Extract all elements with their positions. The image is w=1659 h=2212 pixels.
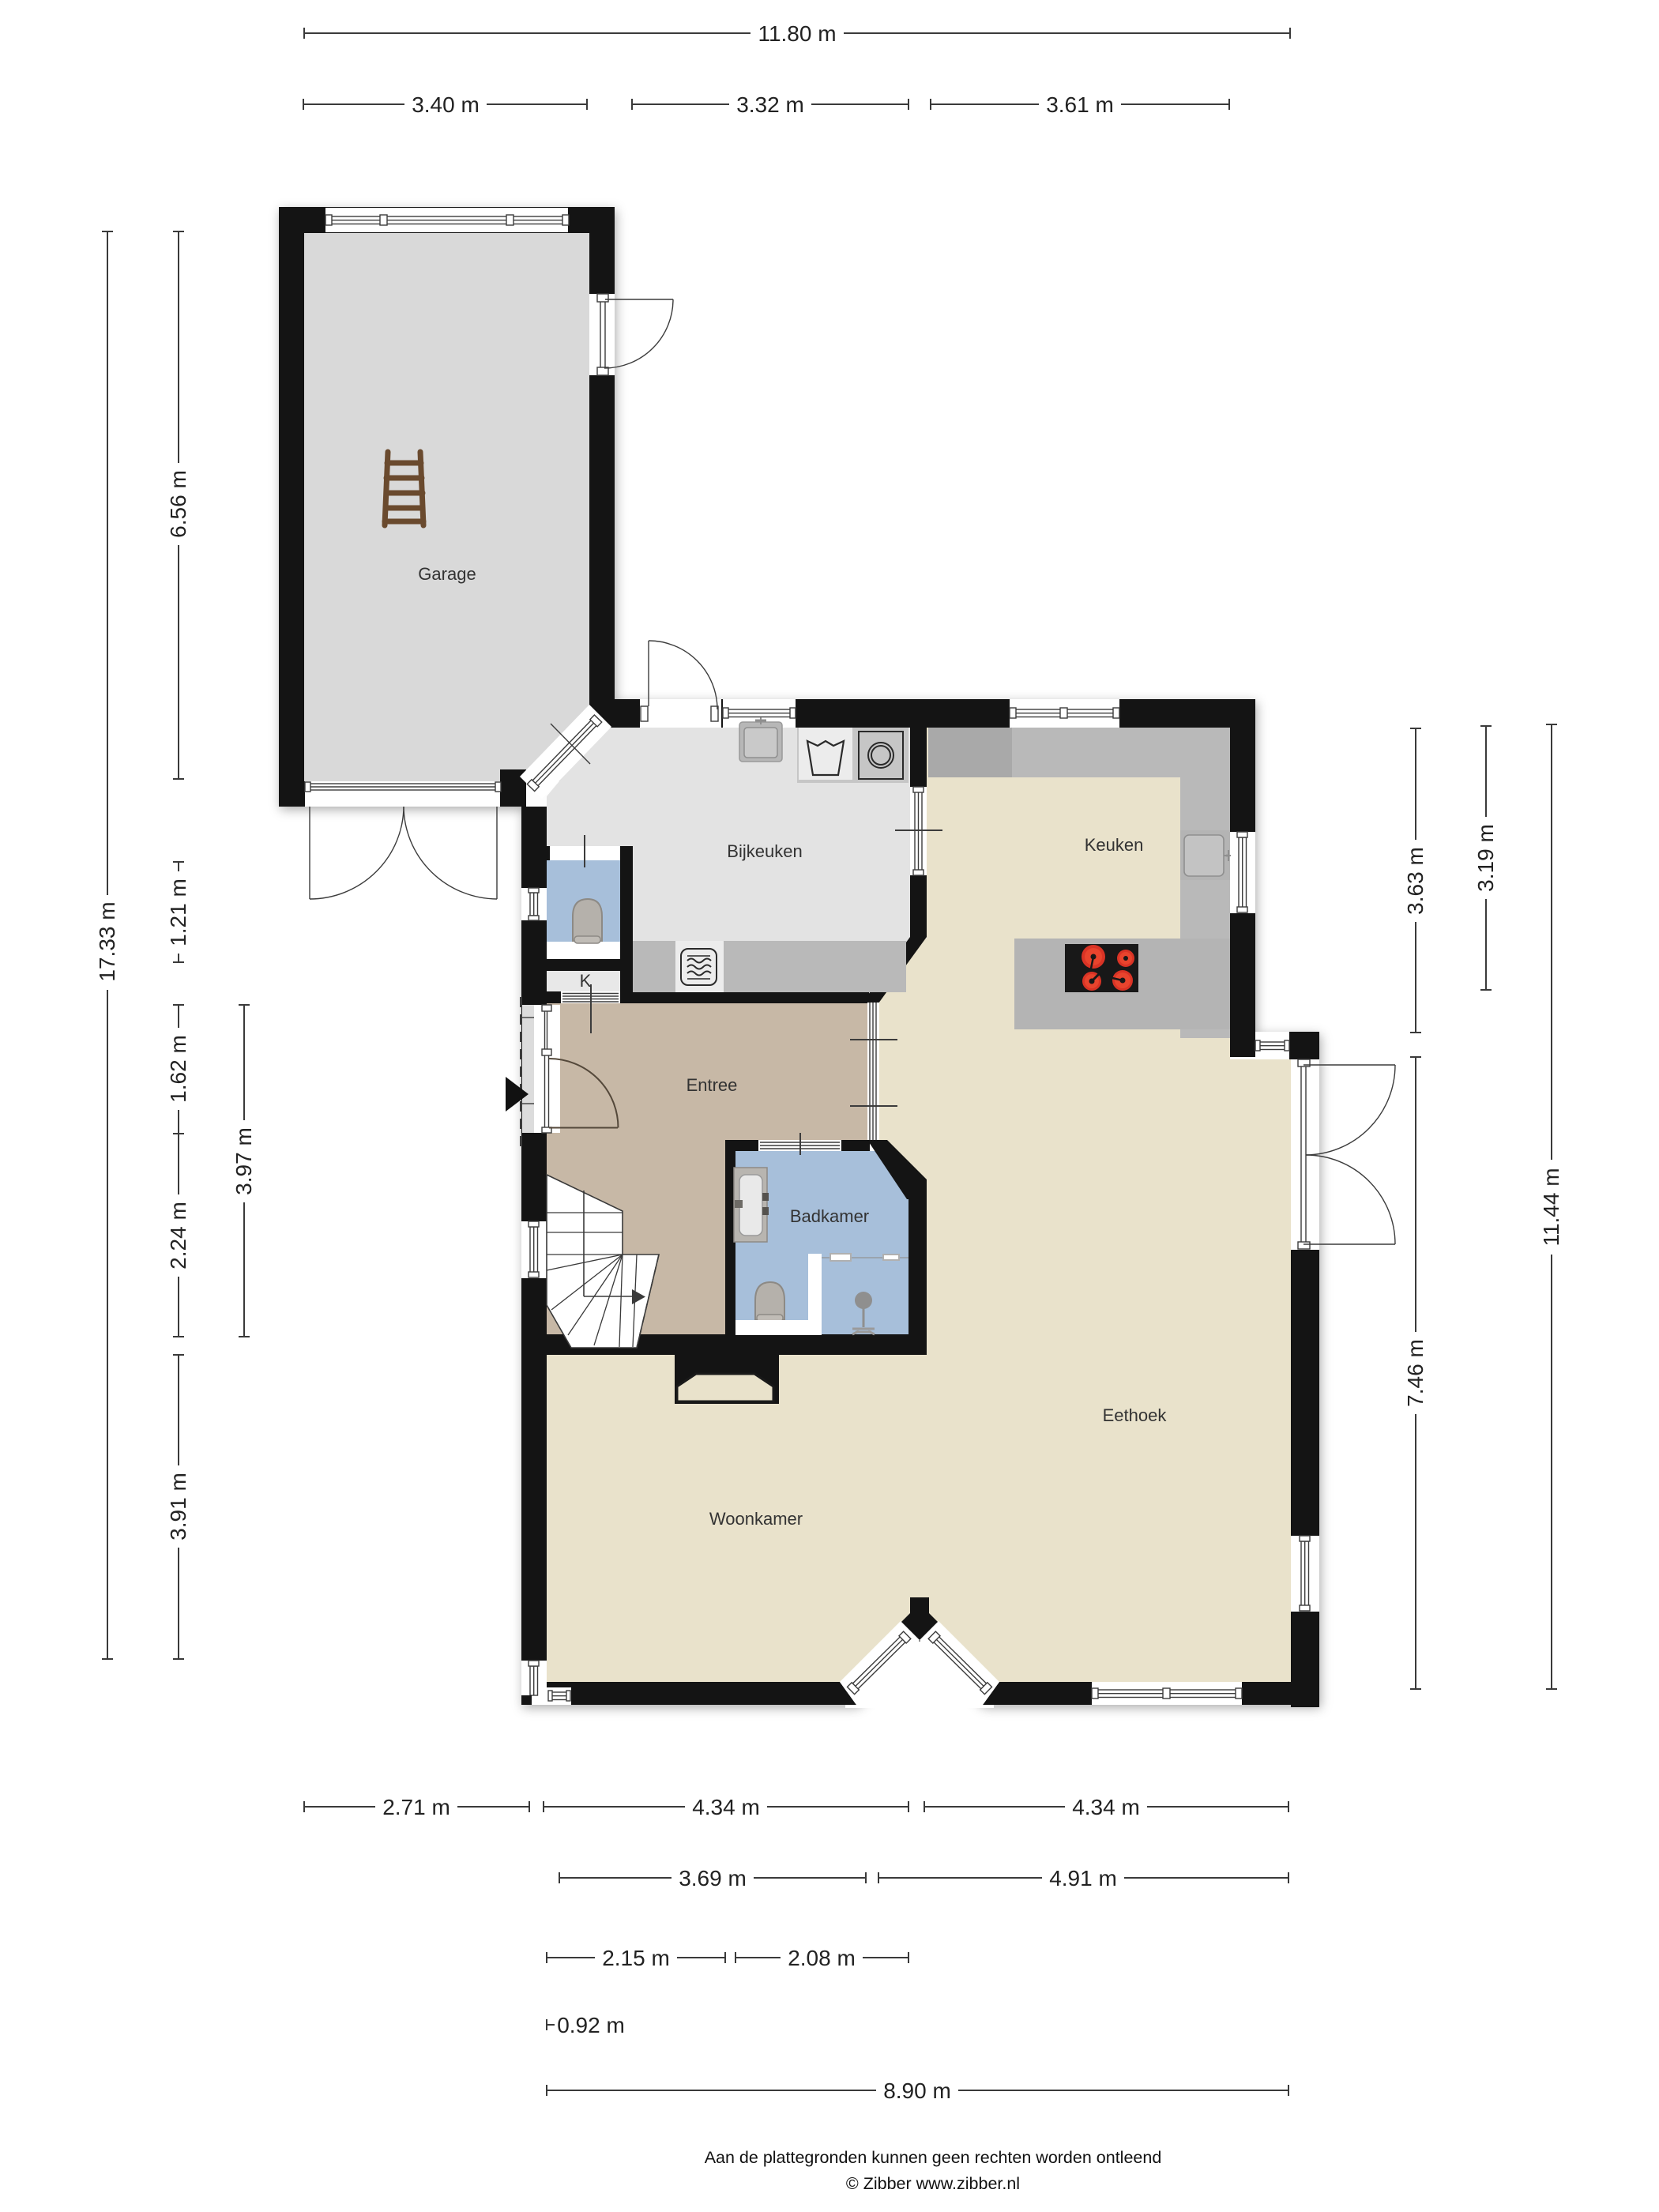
svg-text:8.90 m: 8.90 m [883, 2078, 951, 2103]
svg-text:3.63 m: 3.63 m [1403, 847, 1428, 915]
svg-text:3.91 m: 3.91 m [166, 1473, 190, 1540]
svg-text:4.34 m: 4.34 m [692, 1795, 760, 1819]
svg-text:Garage: Garage [418, 564, 476, 584]
svg-text:Bijkeuken: Bijkeuken [727, 841, 802, 861]
svg-text:4.34 m: 4.34 m [1072, 1795, 1140, 1819]
svg-text:Eethoek: Eethoek [1103, 1405, 1168, 1425]
svg-text:3.61 m: 3.61 m [1046, 92, 1114, 117]
svg-text:Woonkamer: Woonkamer [709, 1509, 803, 1529]
svg-text:1.62 m: 1.62 m [166, 1035, 190, 1103]
svg-text:3.32 m: 3.32 m [736, 92, 804, 117]
svg-text:3.40 m: 3.40 m [412, 92, 480, 117]
svg-text:Badkamer: Badkamer [790, 1206, 869, 1226]
svg-text:3.19 m: 3.19 m [1473, 824, 1498, 892]
svg-text:Entree: Entree [687, 1075, 738, 1095]
svg-text:Keuken: Keuken [1085, 835, 1144, 855]
svg-text:17.33 m: 17.33 m [95, 901, 119, 981]
svg-text:11.80 m: 11.80 m [758, 21, 836, 46]
svg-text:4.91 m: 4.91 m [1049, 1866, 1117, 1890]
svg-text:1.21 m: 1.21 m [166, 878, 190, 946]
svg-text:Aan de plattegronden kunnen ge: Aan de plattegronden kunnen geen rechten… [705, 2148, 1162, 2167]
svg-text:11.44 m: 11.44 m [1539, 1168, 1563, 1246]
svg-text:2.71 m: 2.71 m [382, 1795, 450, 1819]
svg-text:7.46 m: 7.46 m [1403, 1339, 1428, 1407]
svg-text:© Zibber www.zibber.nl: © Zibber www.zibber.nl [846, 2174, 1020, 2193]
svg-text:2.24 m: 2.24 m [166, 1202, 190, 1270]
svg-text:0.92 m: 0.92 m [557, 2013, 625, 2037]
svg-text:2.15 m: 2.15 m [602, 1946, 670, 1970]
svg-text:2.08 m: 2.08 m [788, 1946, 856, 1970]
svg-text:K: K [580, 971, 592, 991]
svg-text:3.69 m: 3.69 m [679, 1866, 747, 1890]
svg-text:3.97 m: 3.97 m [231, 1127, 256, 1195]
svg-text:6.56 m: 6.56 m [166, 470, 190, 538]
